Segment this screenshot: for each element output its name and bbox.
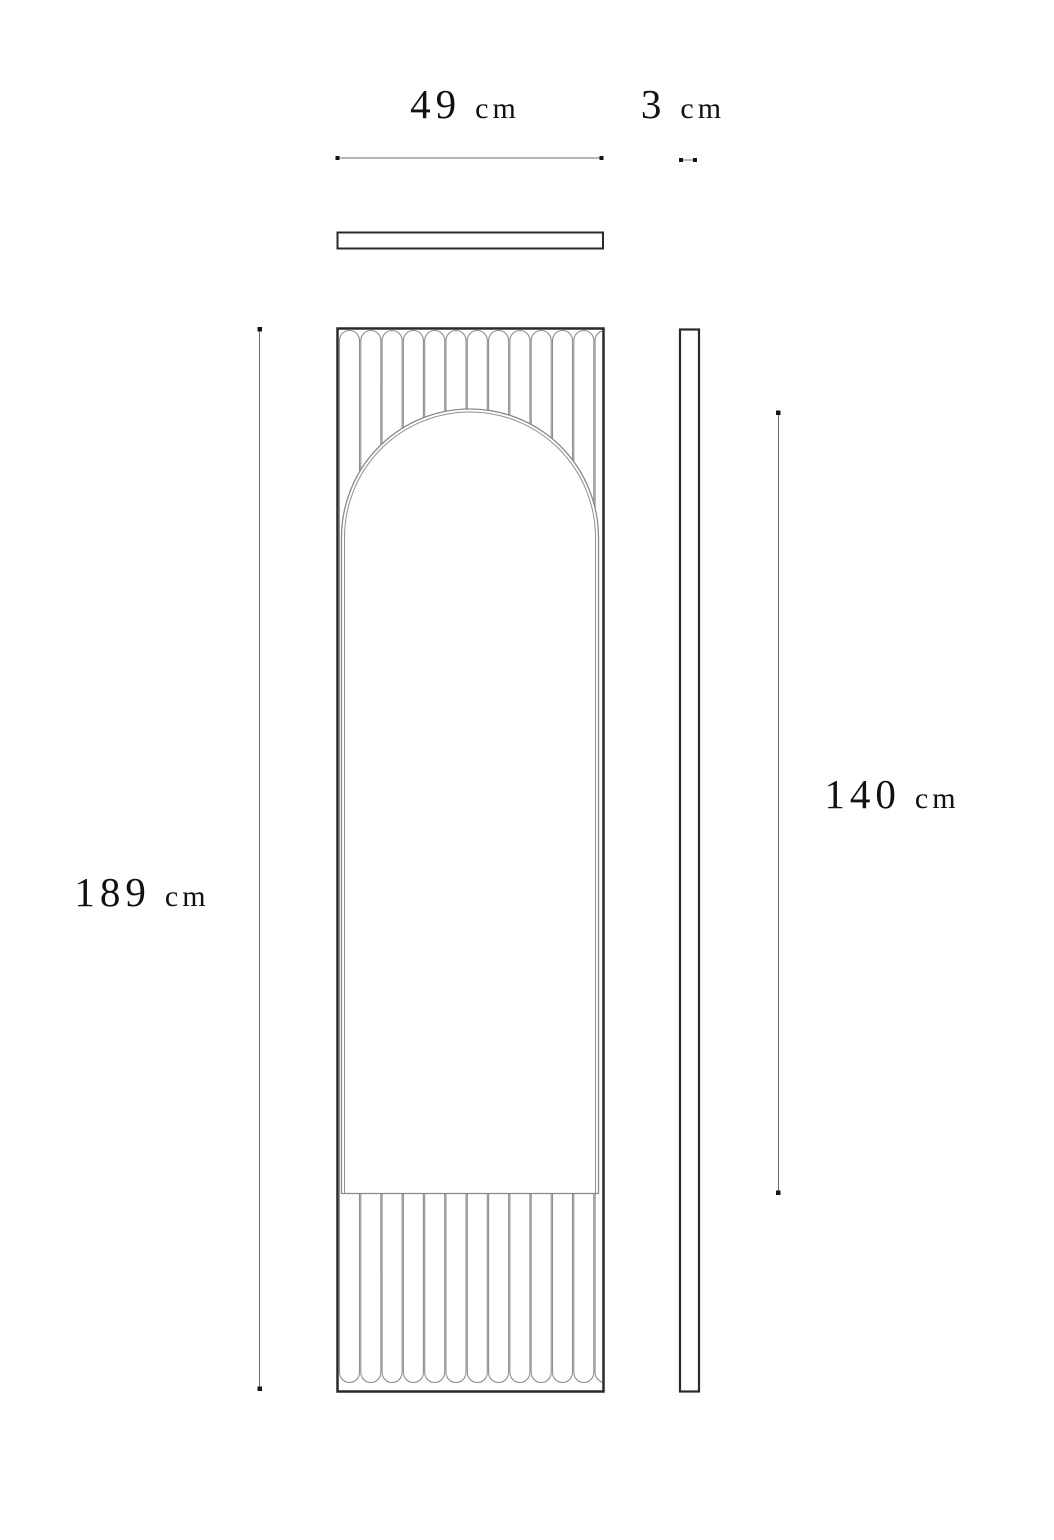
depth-dimension-label: 3 cm <box>641 81 725 127</box>
mirror-height-dimension-label: 140 cm <box>824 771 959 817</box>
width-dimension-label: 49 cm <box>410 81 520 127</box>
front-view <box>338 329 616 1392</box>
mirror-arch-outline <box>342 409 599 1194</box>
dimension-endpoint-dot <box>693 158 697 162</box>
dimension-endpoint-dot <box>258 1387 263 1392</box>
mirror-height-dimension-line <box>776 411 781 1196</box>
depth-dimension-line <box>679 158 697 162</box>
dimension-endpoint-dot <box>679 158 683 162</box>
dimension-endpoint-dot <box>776 411 781 416</box>
depth-unit: cm <box>680 92 725 125</box>
mirror-height-unit: cm <box>915 782 960 815</box>
dimension-endpoint-dot <box>258 327 263 332</box>
width-value: 49 <box>410 81 461 127</box>
side-view-outline <box>680 330 699 1392</box>
dimension-endpoint-dot <box>336 156 340 160</box>
mirror-height-value: 140 <box>824 771 901 817</box>
height-unit: cm <box>165 880 210 913</box>
depth-value: 3 <box>641 81 667 127</box>
width-dimension-line <box>336 156 604 160</box>
width-unit: cm <box>475 92 520 125</box>
dimension-drawing: 49 cm 3 cm 189 cm <box>0 0 1054 1540</box>
dimension-endpoint-dot <box>600 156 604 160</box>
height-dimension-line <box>258 327 263 1391</box>
dimension-endpoint-dot <box>776 1191 781 1196</box>
height-value: 189 <box>74 869 151 915</box>
height-dimension-label: 189 cm <box>74 869 209 915</box>
drawing-page: 49 cm 3 cm 189 cm <box>0 0 1054 1540</box>
top-view-outline <box>338 233 604 249</box>
